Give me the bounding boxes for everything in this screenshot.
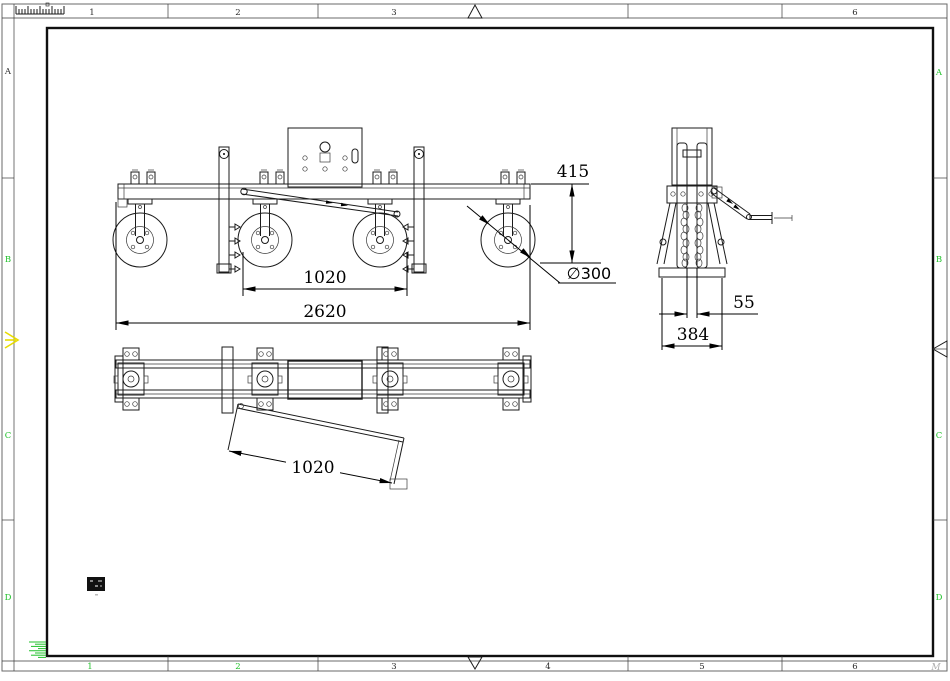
- dim-text-diameter: ∅300: [567, 264, 611, 283]
- drawing-canvas: 1 2 3 6 1 2 3 4 5 6 A B C D A B C D M: [0, 0, 950, 681]
- stand-post-right: [403, 147, 426, 273]
- row-label: A: [935, 68, 943, 78]
- beam-bracket: [373, 170, 397, 184]
- dim-text-overall: 2620: [303, 302, 346, 322]
- dimension-2620: 2620: [116, 202, 530, 330]
- dim-text-gap: 55: [733, 293, 755, 313]
- zone-label: 3: [391, 662, 396, 672]
- stand-post-left: [217, 147, 240, 273]
- plan-caster-1: [114, 348, 148, 410]
- side-mast: [667, 128, 722, 268]
- dim-text-height: 415: [557, 162, 589, 182]
- zone-labels-top: 1 2 3 6: [89, 8, 857, 18]
- corner-watermark: M: [930, 663, 941, 673]
- side-chains: [681, 204, 703, 267]
- dim-text-base: 384: [677, 325, 709, 345]
- centering-mark-right-icon: [933, 341, 947, 357]
- plan-rails: [115, 356, 531, 402]
- centering-mark-left-icon: [5, 332, 18, 348]
- zone-label: 4: [545, 662, 550, 672]
- front-view: [113, 128, 535, 273]
- zone-label: 1: [89, 8, 94, 18]
- beam-bracket: [131, 170, 155, 184]
- beam-bracket: [260, 170, 284, 184]
- centering-mark-top-icon: [468, 5, 482, 18]
- handle-slot-icon: [352, 149, 358, 163]
- plan-post-plate-left: [222, 347, 233, 413]
- side-view: [657, 128, 792, 277]
- wheel-2: [238, 199, 292, 267]
- centering-mark-bottom-icon: [468, 657, 482, 669]
- knob-icon: [320, 142, 330, 152]
- row-label: A: [4, 67, 12, 77]
- plan-caster-3: [373, 348, 407, 410]
- zone-label: 6: [852, 662, 857, 672]
- zone-label: 5: [699, 662, 704, 672]
- row-label: B: [936, 255, 942, 265]
- beam-bracket: [501, 170, 525, 184]
- row-label: B: [5, 255, 11, 265]
- dimension-415: 415: [531, 162, 601, 263]
- row-label: C: [5, 431, 12, 441]
- row-label: D: [936, 593, 943, 603]
- side-legs: [657, 203, 727, 277]
- dim-text-ramp: 1020: [291, 458, 334, 478]
- zone-label: 1: [87, 662, 92, 672]
- dimension-1020-front: 1020: [243, 252, 407, 296]
- row-label: D: [5, 593, 12, 603]
- scale-ruler-top: [16, 3, 64, 14]
- dimensions: 415 ∅300 1020 2620 55: [116, 162, 758, 483]
- wheel-1: [113, 199, 167, 267]
- zone-dividers: [2, 4, 947, 671]
- zone-label: 6: [852, 8, 857, 18]
- scale-ruler-bottom: [29, 642, 46, 657]
- plan-caster-2: [248, 348, 282, 410]
- zone-label: 2: [235, 662, 240, 672]
- zone-label: 3: [391, 8, 396, 18]
- control-box: [288, 128, 362, 187]
- dimension-55: 55: [659, 268, 758, 318]
- row-label: C: [936, 431, 943, 441]
- plan-control-box: [288, 361, 362, 399]
- side-handle-arm: [711, 188, 792, 224]
- cad-drawing-sheet: 1 2 3 6 1 2 3 4 5 6 A B C D A B C D M: [0, 0, 950, 681]
- row-labels-right: A B C D: [935, 68, 943, 603]
- wheel-4: [481, 199, 535, 267]
- inspection-stamp: [87, 577, 105, 596]
- dimension-1020-ramp: 1020: [229, 451, 392, 483]
- dimension-wheel-diameter: ∅300: [467, 206, 616, 283]
- dim-text-spacing: 1020: [303, 268, 346, 288]
- sheet-frame: 1 2 3 6 1 2 3 4 5 6 A B C D A B C D M: [2, 3, 947, 673]
- zone-label: 2: [235, 8, 240, 18]
